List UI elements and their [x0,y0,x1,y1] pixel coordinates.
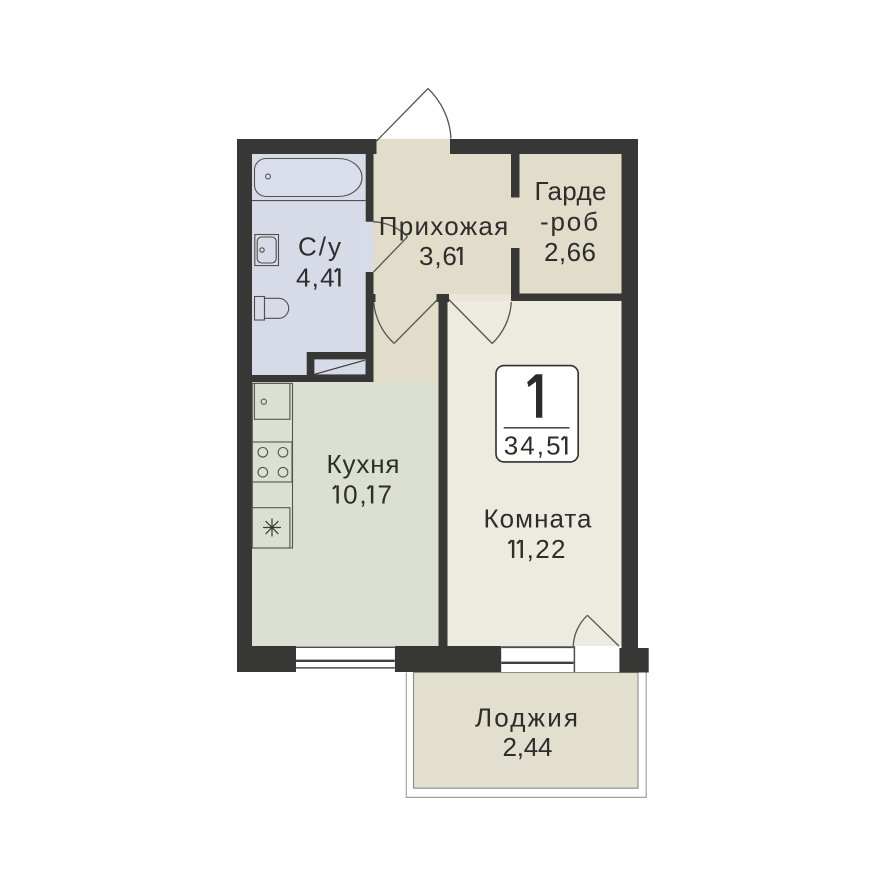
svg-text:Комната: Комната [484,504,593,534]
svg-text:3,6I: 3,6I [419,241,465,271]
svg-text:2,44: 2,44 [503,732,553,762]
svg-text:34,5I: 34,5I [504,430,570,460]
svg-text:4,4I: 4,4I [296,262,343,292]
svg-text:Прихожая: Прихожая [379,211,509,241]
svg-text:II,22: II,22 [510,534,566,564]
svg-text:I0,I7: I0,I7 [334,480,392,510]
svg-text:Гарде: Гарде [535,176,607,206]
svg-text:С/у: С/у [298,232,341,262]
svg-text:Кухня: Кухня [327,449,400,479]
svg-text:2,66: 2,66 [544,237,596,267]
